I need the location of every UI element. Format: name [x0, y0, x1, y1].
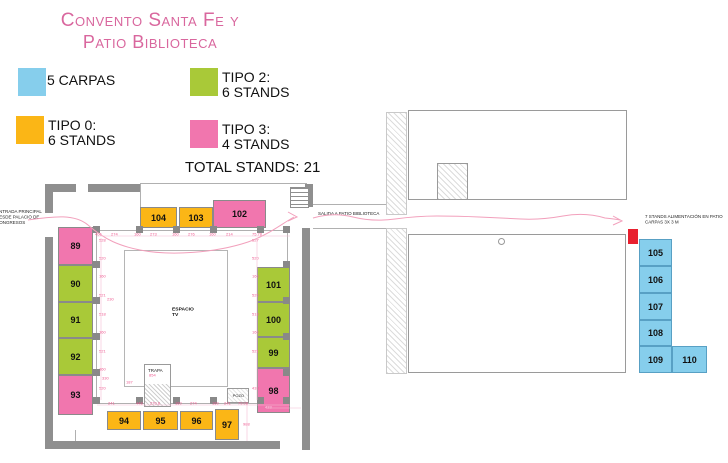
pilaster [283, 226, 290, 233]
stand-89: 89 [58, 227, 93, 265]
stand-95: 95 [143, 411, 178, 430]
stand-102: 102 [213, 200, 266, 228]
floor-plan-canvas: Convento Santa Fe y Patio Biblioteca 5 C… [0, 0, 728, 463]
dim-label: 330 [102, 376, 109, 381]
stand-94: 94 [107, 411, 141, 430]
exit-label: SALIDA A PATIO BIBLIOTECA [318, 211, 379, 217]
dim-label: 406 [95, 232, 102, 237]
dim-label: 521 [99, 349, 106, 354]
stand-103: 103 [179, 207, 213, 228]
dim-label: 160 [252, 330, 259, 335]
pilaster [283, 261, 290, 268]
legend-label-tipo0-1: TIPO 0: [48, 118, 96, 133]
circle-marker [498, 238, 505, 245]
dim-label: 527 [252, 238, 259, 243]
red-marker [628, 229, 638, 244]
dim-label: 270.8 [150, 401, 160, 406]
stand-105: 105 [639, 239, 672, 266]
entrance-line3: CONGRESOS [0, 220, 42, 226]
upper-building-annex [437, 163, 468, 200]
dim-label: 528 [99, 238, 106, 243]
stand-91: 91 [58, 302, 93, 338]
legend-swatch-tipo0 [16, 116, 44, 144]
legend-label-tipo0-2: 6 STANDS [48, 133, 115, 148]
dim-label: 520 [99, 386, 106, 391]
dim-label: 160 [252, 274, 259, 279]
dim-label: 160 [99, 367, 106, 372]
dim-label: 230 [107, 297, 114, 302]
stand-92: 92 [58, 338, 93, 375]
dim-label: 988 [243, 422, 250, 427]
dim-label: 187 [126, 380, 133, 385]
dim-label: 518 [252, 312, 259, 317]
wall-right [302, 228, 310, 450]
dim-label: 241 [224, 401, 231, 406]
wall-bottom [45, 441, 280, 449]
food-stands-line2: CARPAS 3X 3 M [645, 220, 723, 226]
dim-label: 160 [172, 232, 179, 237]
stand-107: 107 [639, 293, 672, 320]
room-line [75, 430, 76, 441]
dim-label: 160 [212, 401, 219, 406]
gallery-top-line [140, 183, 307, 184]
upper-building-wall [386, 112, 407, 215]
dim-label: 518 [99, 312, 106, 317]
wall-left [45, 237, 53, 449]
pilaster [93, 261, 100, 268]
stand-90: 90 [58, 265, 93, 302]
pilaster [283, 297, 290, 304]
route-arrow-food [613, 216, 622, 225]
dim-label: 274 [190, 401, 197, 406]
pilaster [283, 333, 290, 340]
dim-label: 520 [99, 256, 106, 261]
legend-swatch-carpas [18, 68, 46, 96]
stand-93: 93 [58, 375, 93, 415]
pilaster [283, 369, 290, 376]
court-left-line [96, 230, 97, 404]
legend-swatch-tipo3 [190, 120, 218, 148]
lower-building [408, 234, 626, 373]
dim-label: 273 [150, 232, 157, 237]
stand-109: 109 [639, 346, 672, 373]
stand-97: 97 [215, 409, 239, 440]
pilaster [93, 397, 100, 404]
dim-label: 433 [252, 386, 259, 391]
legend-swatch-tipo2 [190, 68, 218, 96]
legend-label-carpas: 5 CARPAS [47, 73, 115, 88]
pilaster [283, 397, 290, 404]
dim-label: 160 [209, 232, 216, 237]
stand-108: 108 [639, 320, 672, 346]
food-stands-label: 7 STANDS ALIMENTACIÓN EN PATIO CARPAS 3X… [645, 214, 723, 225]
dim-label: 241 [108, 401, 115, 406]
dim-label: 276 [188, 232, 195, 237]
stand-106: 106 [639, 266, 672, 293]
route-arrow-exit [288, 212, 297, 221]
dim-label: 160 [99, 330, 106, 335]
dim-label: 79.08 [238, 401, 248, 406]
corridor-bottom-line [313, 228, 388, 229]
corridor-top-line [313, 204, 388, 205]
dim-label: 520 [252, 293, 259, 298]
legend-label-tipo2-1: TIPO 2: [222, 70, 270, 85]
dim-label: 274 [111, 232, 118, 237]
title-line2: Patio Biblioteca [25, 32, 275, 53]
route-path-svg [0, 0, 728, 463]
dim-label: 433 [265, 405, 272, 410]
dim-label: 448 [136, 401, 143, 406]
stand-100: 100 [257, 302, 290, 337]
dim-label: 214 [226, 232, 233, 237]
dim-label: 160 [99, 274, 106, 279]
espacio-tv-label: ESPACIO TV [172, 306, 194, 317]
total-stands-label: TOTAL STANDS: 21 [185, 159, 320, 176]
stairs-icon [290, 187, 309, 208]
dim-label: 521 [252, 349, 259, 354]
dim-label: 75.78 [252, 232, 262, 237]
wall-top-2 [88, 184, 141, 192]
stand-110: 110 [672, 346, 707, 373]
dim-label: 160 [134, 232, 141, 237]
courtyard-floor [124, 250, 228, 387]
dim-label: 854 [149, 373, 156, 378]
legend-label-tipo3-2: 4 STANDS [222, 137, 289, 152]
dim-label: 521 [99, 293, 106, 298]
stand-96: 96 [180, 411, 213, 430]
stand-99: 99 [257, 337, 290, 368]
pozo-label: POZO [232, 393, 243, 398]
title-line1: Convento Santa Fe y [25, 10, 275, 32]
wall-top-left-v [45, 184, 53, 213]
dim-label: 160 [175, 401, 182, 406]
stand-104: 104 [140, 207, 177, 228]
pilaster [93, 297, 100, 304]
page-title: Convento Santa Fe y Patio Biblioteca [25, 10, 275, 53]
lower-building-wall [386, 228, 407, 374]
dim-label: 520 [252, 256, 259, 261]
espacio-line2: TV [172, 312, 194, 318]
legend-label-tipo3-1: TIPO 3: [222, 122, 270, 137]
legend-label-tipo2-2: 6 STANDS [222, 85, 289, 100]
entrance-label: ENTRADA PRINCIPAL DESDE PALACIO DE CONGR… [0, 209, 42, 226]
pilaster [257, 397, 264, 404]
